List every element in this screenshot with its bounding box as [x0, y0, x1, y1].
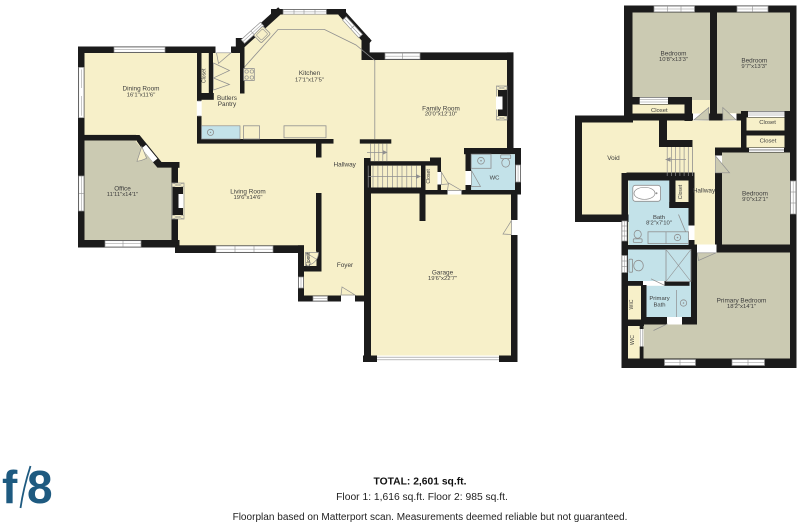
- svg-text:WIC: WIC: [630, 335, 636, 345]
- svg-text:Closet: Closet: [202, 68, 208, 83]
- svg-text:Void: Void: [607, 155, 620, 162]
- svg-text:Hallway: Hallway: [334, 162, 357, 169]
- svg-text:9'0"x12'1": 9'0"x12'1": [742, 197, 768, 203]
- svg-text:18'2"x14'1": 18'2"x14'1": [727, 304, 756, 310]
- svg-text:19'6"x14'6": 19'6"x14'6": [233, 195, 262, 201]
- svg-text:11'11"x14'1": 11'11"x14'1": [107, 192, 138, 198]
- svg-text:8'2"x7'10": 8'2"x7'10": [646, 220, 672, 226]
- svg-text:Closet: Closet: [651, 108, 668, 114]
- svg-text:Floorplan based on Matterport: Floorplan based on Matterport scan. Meas…: [233, 512, 628, 523]
- svg-text:19'6"x22'7": 19'6"x22'7": [428, 276, 457, 282]
- svg-text:Foyer: Foyer: [337, 262, 354, 269]
- svg-text:Bath: Bath: [653, 302, 665, 308]
- svg-text:8: 8: [27, 461, 53, 513]
- svg-text:Closet: Closet: [760, 139, 777, 145]
- svg-text:Primary: Primary: [649, 296, 669, 302]
- svg-text:TOTAL: 2,601 sq.ft.: TOTAL: 2,601 sq.ft.: [374, 477, 467, 488]
- svg-text:Closet: Closet: [426, 169, 432, 184]
- svg-text:9'7"x13'3": 9'7"x13'3": [741, 64, 767, 70]
- svg-text:Closet: Closet: [759, 120, 776, 126]
- svg-text:10'8"x13'3": 10'8"x13'3": [659, 57, 688, 63]
- svg-text:16'1"x11'6": 16'1"x11'6": [127, 92, 156, 98]
- svg-text:Hallway: Hallway: [693, 188, 716, 195]
- svg-text:20'0"x12'10": 20'0"x12'10": [425, 112, 457, 118]
- svg-text:WC: WC: [490, 175, 501, 181]
- svg-text:Closet: Closet: [678, 184, 684, 199]
- svg-text:WIC: WIC: [629, 299, 635, 309]
- svg-text:f: f: [2, 461, 18, 513]
- svg-text:17'1"x17'5": 17'1"x17'5": [295, 78, 324, 84]
- svg-text:Floor 1: 1,616 sq.ft. Floor 2:: Floor 1: 1,616 sq.ft. Floor 2: 985 sq.ft…: [336, 492, 508, 503]
- svg-text:Closet: Closet: [306, 252, 312, 267]
- svg-text:Kitchen: Kitchen: [299, 70, 321, 77]
- svg-text:Pantry: Pantry: [218, 101, 237, 108]
